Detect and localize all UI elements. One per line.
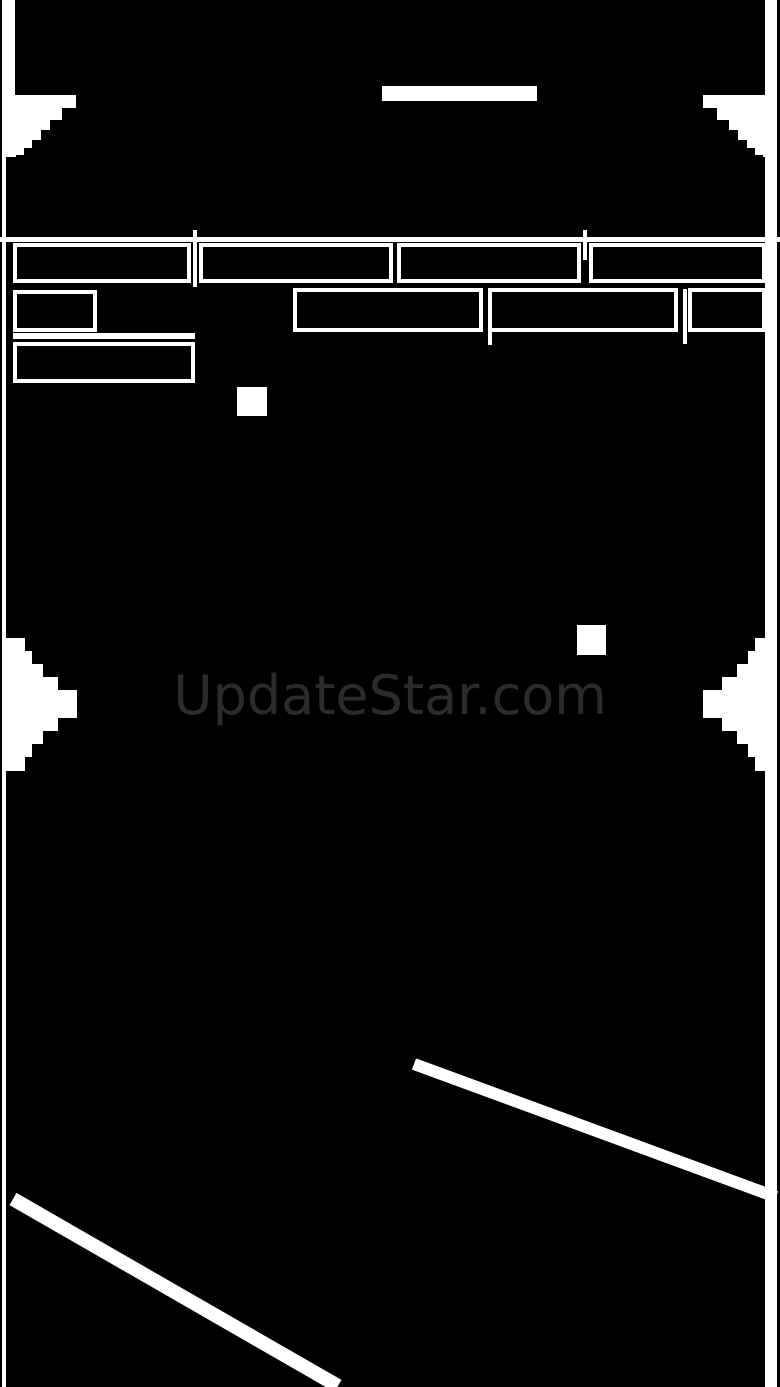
separator-line (0, 237, 780, 242)
brick-outline-r2c1 (15, 292, 95, 330)
brick-outlines (15, 245, 764, 381)
watermark-text: UpdateStar.com (0, 666, 780, 726)
brick-outline-r2c2 (295, 290, 481, 330)
brick-outline-r2c3 (490, 290, 676, 330)
corner-notch-top-left-icon (6, 95, 76, 157)
corner-notch-top-right-icon (703, 95, 774, 157)
brick-outline-r1c4 (591, 245, 764, 281)
divider-tick-2 (583, 230, 587, 260)
underline-bar (13, 333, 195, 339)
laser-lines (13, 1064, 776, 1386)
divider-tick-3 (683, 289, 687, 344)
laser-line-2 (13, 1199, 338, 1386)
brick-outline-r2c4 (690, 290, 764, 330)
game-frame: UpdateStar.com (0, 0, 780, 1387)
brick-outline-r3c1 (15, 344, 193, 381)
brick-outline-r1c3 (399, 245, 579, 281)
brick-outline-r1c2 (201, 245, 391, 281)
powerup-square-1 (237, 387, 267, 416)
laser-line-1 (414, 1064, 776, 1197)
top-bar (382, 86, 537, 101)
divider-tick-4 (488, 332, 492, 345)
brick-outline-r1c1 (15, 245, 189, 281)
divider-tick-1 (193, 230, 197, 287)
powerup-square-2 (577, 625, 606, 655)
